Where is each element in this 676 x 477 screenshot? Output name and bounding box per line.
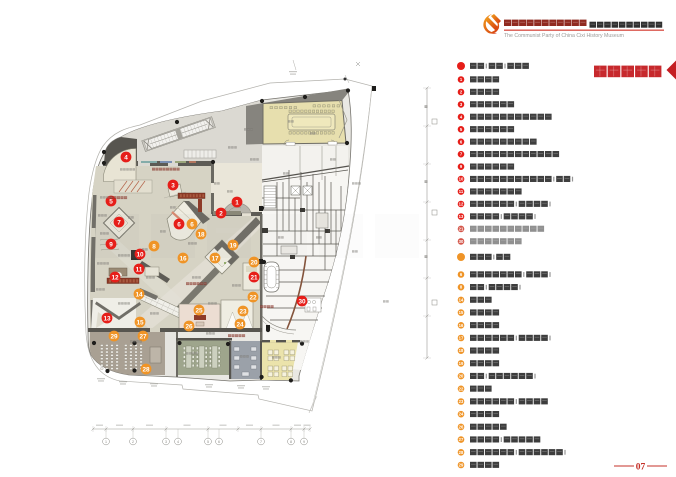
svg-text:11: 11 xyxy=(136,266,143,273)
svg-text:21: 21 xyxy=(250,274,258,281)
svg-text:5: 5 xyxy=(109,198,113,205)
svg-text:9: 9 xyxy=(303,440,305,444)
svg-text:6: 6 xyxy=(218,440,220,444)
svg-text:17: 17 xyxy=(459,336,464,341)
svg-text:6: 6 xyxy=(190,221,194,228)
svg-text:07: 07 xyxy=(636,463,646,473)
svg-text:24: 24 xyxy=(236,321,244,328)
svg-text:21: 21 xyxy=(459,226,464,231)
svg-text:30: 30 xyxy=(459,239,464,244)
svg-text:28: 28 xyxy=(459,450,464,455)
svg-text:1: 1 xyxy=(105,440,107,444)
svg-text:10: 10 xyxy=(136,251,144,258)
svg-text:20: 20 xyxy=(250,259,258,266)
svg-text:16: 16 xyxy=(179,255,187,262)
svg-text:23: 23 xyxy=(459,399,464,404)
svg-text:27: 27 xyxy=(459,437,464,442)
svg-text:22: 22 xyxy=(249,294,257,301)
svg-text:17: 17 xyxy=(211,255,219,262)
svg-text:12: 12 xyxy=(459,202,464,207)
svg-text:29: 29 xyxy=(110,333,118,340)
svg-text:8: 8 xyxy=(290,440,292,444)
svg-text:8: 8 xyxy=(152,243,156,250)
svg-text:29: 29 xyxy=(459,463,464,468)
svg-text:10: 10 xyxy=(459,177,464,182)
svg-text:25: 25 xyxy=(195,307,203,314)
svg-text:18: 18 xyxy=(197,231,205,238)
svg-text:14: 14 xyxy=(135,291,143,298)
svg-text:16: 16 xyxy=(459,323,464,328)
svg-text:13: 13 xyxy=(103,315,111,322)
svg-text:22: 22 xyxy=(459,386,464,391)
svg-text:27: 27 xyxy=(139,333,147,340)
svg-text:24: 24 xyxy=(459,412,464,417)
svg-text:9: 9 xyxy=(109,241,113,248)
svg-text:1: 1 xyxy=(235,199,239,206)
svg-text:20: 20 xyxy=(459,374,464,379)
svg-text:The Communist Party of China C: The Communist Party of China Cixi Histor… xyxy=(504,33,624,39)
svg-text:6: 6 xyxy=(177,221,181,228)
svg-text:13: 13 xyxy=(459,214,464,219)
svg-text:3: 3 xyxy=(171,182,175,189)
svg-text:12: 12 xyxy=(111,274,119,281)
svg-text:18: 18 xyxy=(459,348,464,353)
svg-text:19: 19 xyxy=(229,242,237,249)
svg-text:26: 26 xyxy=(459,424,464,429)
svg-text:26: 26 xyxy=(185,323,193,330)
svg-text:28: 28 xyxy=(142,366,150,373)
svg-text:15: 15 xyxy=(136,319,144,326)
svg-text:7: 7 xyxy=(260,440,262,444)
svg-text:30: 30 xyxy=(298,298,306,305)
svg-text:14: 14 xyxy=(459,297,464,302)
svg-text:15: 15 xyxy=(459,310,464,315)
svg-text:11: 11 xyxy=(459,189,464,194)
svg-text:2: 2 xyxy=(219,210,223,217)
svg-text:4: 4 xyxy=(124,154,128,161)
svg-text:3: 3 xyxy=(165,440,167,444)
svg-text:5: 5 xyxy=(207,440,209,444)
svg-text:7: 7 xyxy=(117,219,121,226)
svg-text:4: 4 xyxy=(177,440,179,444)
svg-text:23: 23 xyxy=(239,308,247,315)
svg-text:19: 19 xyxy=(459,361,464,366)
svg-text:2: 2 xyxy=(132,440,134,444)
